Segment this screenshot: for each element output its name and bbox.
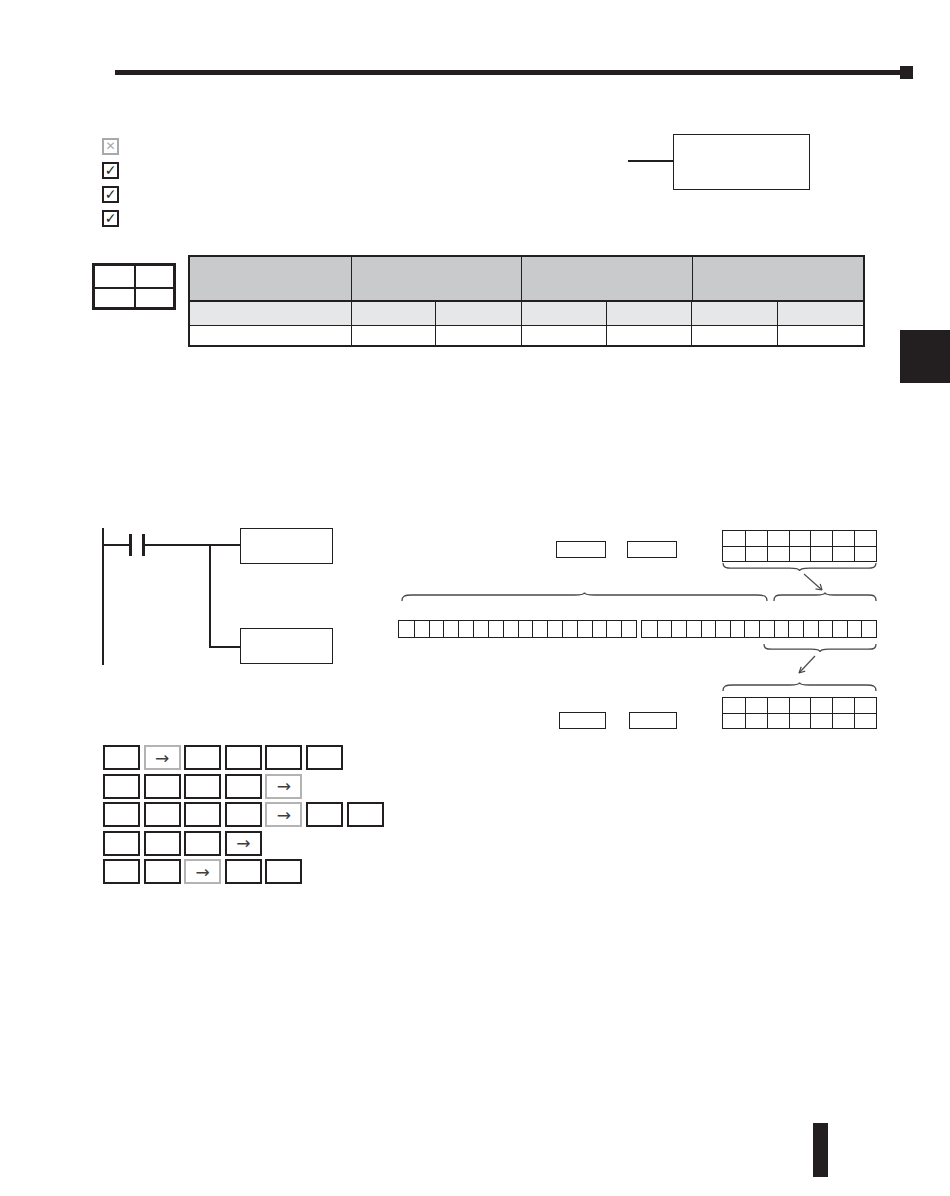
header-rule-end-square-icon	[900, 66, 913, 79]
word-label-box	[629, 712, 677, 729]
callout-leader-line	[628, 160, 673, 162]
spec-body-cell	[777, 326, 862, 345]
bit-cell	[759, 621, 774, 637]
bit-cell	[592, 621, 607, 637]
word-grid-cell	[789, 546, 811, 561]
bit-cell	[443, 621, 458, 637]
blank-key	[144, 831, 181, 856]
checked-checkbox-icon: ✓	[102, 186, 119, 203]
header-rule	[115, 70, 901, 75]
spec-body-cell	[606, 326, 691, 345]
mini-table-cell	[134, 266, 173, 287]
word-grid-cell	[745, 698, 767, 713]
arrow-down-left-icon	[793, 654, 821, 678]
footer-page-bar-icon	[813, 1123, 828, 1177]
ladder-wire	[145, 544, 240, 546]
overbrace-long-icon	[401, 592, 768, 602]
spec-body-cell	[521, 326, 606, 345]
bit-cell	[832, 621, 847, 637]
bit-cell	[473, 621, 488, 637]
overbrace-icon	[722, 682, 877, 692]
blank-key	[184, 774, 221, 799]
word-grid-cell	[767, 713, 789, 728]
blank-key	[225, 859, 262, 884]
bit-cell	[518, 621, 533, 637]
bit-cell	[818, 621, 833, 637]
blank-key	[225, 745, 262, 770]
word-label-box	[627, 541, 677, 558]
word-grid-cell	[767, 546, 789, 561]
bit-cell	[577, 621, 592, 637]
spec-body-cell	[435, 326, 521, 345]
mini-table-cell	[95, 287, 134, 308]
next-arrow-key-icon: →	[184, 859, 221, 884]
word-grid-cell	[854, 713, 876, 728]
bit-cell	[503, 621, 518, 637]
bit-cell	[671, 621, 686, 637]
word-grid-cell	[832, 698, 854, 713]
word-grid-cell	[789, 531, 811, 546]
word-grid-cell	[745, 713, 767, 728]
spec-subheader-cell	[521, 302, 606, 325]
keypad-row: →	[103, 802, 384, 827]
checked-checkbox-icon: ✓	[102, 162, 119, 179]
word-grid-cell	[810, 698, 832, 713]
word-grid-cell	[854, 698, 876, 713]
overbrace-short-icon	[773, 592, 877, 602]
blank-key	[265, 859, 302, 884]
bit-cell	[606, 621, 621, 637]
word-grid-cell	[767, 531, 789, 546]
check-glyph: ✓	[105, 163, 117, 177]
blank-key	[225, 774, 262, 799]
spec-header-cell	[190, 257, 351, 300]
word-grid-cell	[832, 546, 854, 561]
word-grid-cell	[810, 546, 832, 561]
ladder-branch-wire	[209, 545, 211, 648]
word-grid-cell	[723, 698, 745, 713]
checklist: ✕✓✓✓	[102, 138, 119, 227]
check-glyph: ✓	[105, 211, 117, 225]
word-grid-cell	[810, 531, 832, 546]
bit-cell	[414, 621, 429, 637]
bit-cell	[701, 621, 716, 637]
spec-header-cell	[351, 257, 521, 300]
keypad: →→→→→	[103, 745, 384, 884]
bit-cell	[532, 621, 547, 637]
word-grid-cell	[745, 531, 767, 546]
word-grid-cell	[745, 546, 767, 561]
spec-table-header-row	[190, 257, 863, 300]
bit-cell	[621, 621, 636, 637]
ladder-output-box	[240, 528, 333, 564]
checked-checkbox-icon: ✓	[102, 210, 119, 227]
spec-body-cell	[351, 326, 435, 345]
word-grid-cell	[854, 531, 876, 546]
bit-row-high-word	[398, 620, 637, 638]
spec-subheader-cell	[606, 302, 691, 325]
accumulator-word-grid	[722, 530, 877, 562]
blank-key	[144, 859, 181, 884]
bit-cell	[399, 621, 414, 637]
bit-cell	[774, 621, 789, 637]
manual-page: ✕✓✓✓	[0, 0, 950, 1196]
word-grid-cell	[854, 546, 876, 561]
ladder-wire	[104, 544, 129, 546]
bit-cell	[744, 621, 759, 637]
spec-body-cell	[190, 326, 351, 345]
next-arrow-key-icon: →	[265, 774, 302, 799]
blank-key	[103, 745, 140, 770]
word-label-box	[556, 541, 606, 558]
blank-key	[306, 745, 343, 770]
spec-header-cell	[692, 257, 862, 300]
word-grid-cell	[789, 713, 811, 728]
blank-key	[103, 859, 140, 884]
contact-bar-icon	[129, 534, 132, 556]
spec-subheader-cell	[351, 302, 435, 325]
next-arrow-key-icon: →	[225, 831, 262, 856]
blank-key	[144, 802, 181, 827]
bit-cell	[642, 621, 657, 637]
spec-header-cell	[521, 257, 692, 300]
spec-subheader-cell	[777, 302, 862, 325]
bit-cell	[562, 621, 577, 637]
keypad-row: →	[103, 831, 384, 856]
spec-subheader-cell	[190, 302, 351, 325]
keypad-row: →	[103, 774, 384, 799]
spec-subheader-cell	[435, 302, 521, 325]
x-checkbox-icon: ✕	[102, 138, 119, 155]
check-glyph: ✓	[105, 187, 117, 201]
bit-cell	[547, 621, 562, 637]
bit-cell	[730, 621, 745, 637]
word-label-box	[559, 712, 606, 729]
next-arrow-key-icon: →	[144, 745, 181, 770]
keypad-row: →	[103, 859, 384, 884]
blank-key	[306, 802, 343, 827]
word-grid-cell	[810, 713, 832, 728]
spec-table-subheader-row	[190, 300, 863, 325]
mini-table-cell	[95, 266, 134, 287]
x-glyph: ✕	[105, 140, 115, 152]
word-grid-cell	[789, 698, 811, 713]
word-grid-cell	[832, 531, 854, 546]
blank-key	[103, 774, 140, 799]
blank-key	[225, 802, 262, 827]
spec-table	[188, 255, 865, 347]
word-grid-cell	[723, 713, 745, 728]
spec-subheader-cell	[691, 302, 777, 325]
blank-key	[144, 774, 181, 799]
ladder-left-rail	[102, 528, 104, 665]
result-word-grid	[722, 697, 877, 729]
bit-cell	[488, 621, 503, 637]
blank-key	[347, 802, 384, 827]
bit-cell	[803, 621, 818, 637]
word-grid-cell	[723, 546, 745, 561]
bit-cell	[657, 621, 672, 637]
blank-key	[265, 745, 302, 770]
bit-row-low-word	[641, 620, 877, 638]
bit-cell	[847, 621, 862, 637]
ladder-output-box	[240, 628, 333, 664]
blank-key	[103, 831, 140, 856]
mini-table-cell	[134, 287, 173, 308]
blank-key	[184, 831, 221, 856]
ladder-branch-wire	[210, 646, 240, 648]
bit-cell	[715, 621, 730, 637]
spec-body-cell	[691, 326, 777, 345]
blank-key	[184, 745, 221, 770]
word-grid-cell	[723, 531, 745, 546]
underbrace-icon	[763, 643, 877, 653]
word-grid-cell	[767, 698, 789, 713]
bit-cell	[686, 621, 701, 637]
bit-cell	[458, 621, 473, 637]
chapter-tab-icon	[900, 330, 950, 383]
bit-cell	[861, 621, 876, 637]
blank-key	[103, 802, 140, 827]
word-grid-cell	[832, 713, 854, 728]
bit-cell	[429, 621, 444, 637]
next-arrow-key-icon: →	[265, 802, 302, 827]
blank-key	[184, 802, 221, 827]
mini-table	[92, 263, 176, 310]
keypad-row: →	[103, 745, 384, 770]
bit-cell	[788, 621, 803, 637]
callout-box	[673, 134, 810, 190]
spec-table-body-row	[190, 325, 863, 345]
